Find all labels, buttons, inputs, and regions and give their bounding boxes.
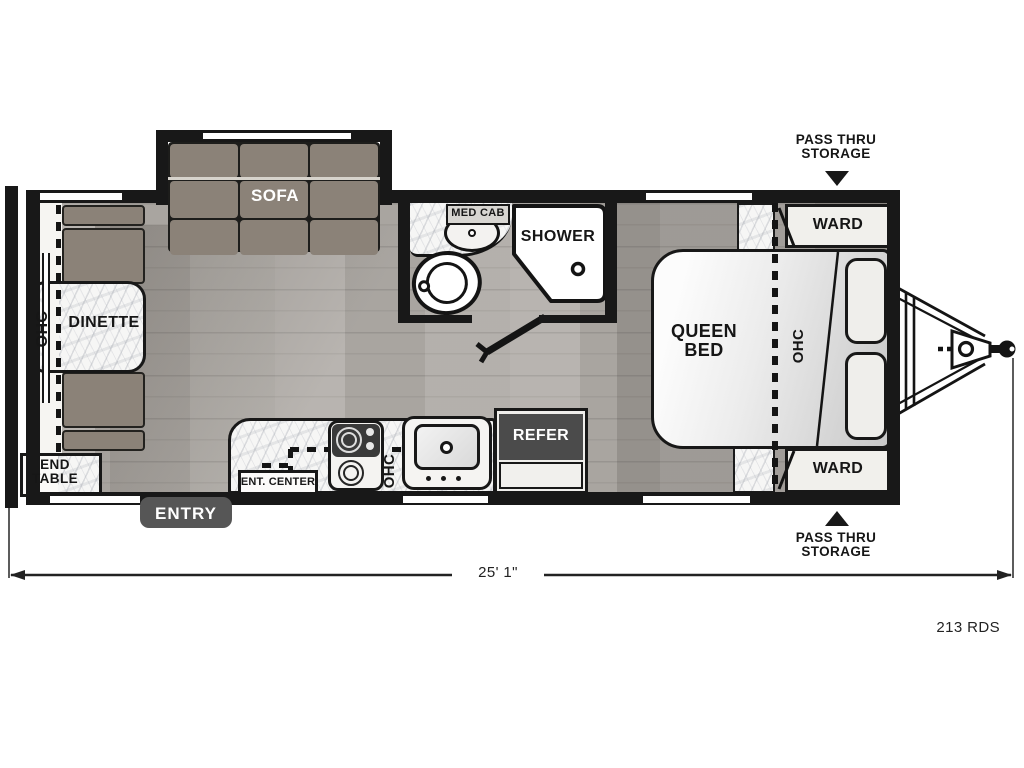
pass-thru-bottom-arrow-icon [825,511,849,526]
refer-label: REFER [499,428,583,445]
bed-diagonal [817,252,838,446]
linework-overlay [0,0,1024,768]
window [50,494,140,505]
window [203,131,351,141]
bath-wall-right [605,203,617,323]
kitchen-ohc-label: OHC [382,443,398,499]
shower-label: SHOWER [514,229,602,246]
rear-bumper [5,186,18,508]
window [40,191,122,202]
med-cab-label: MED CAB [446,208,510,220]
wall-top-right [390,190,900,203]
bath-door [487,317,545,352]
sofa-label: SOFA [225,187,325,205]
bath-door-tick [477,344,487,352]
pass-thru-top-arrow-icon [825,171,849,186]
entry-label: ENTRY [140,505,232,523]
dinette-label: DINETTE [62,315,146,332]
pass-thru-bottom-label: PASS THRU STORAGE [785,531,887,560]
window [643,494,750,505]
wall-front [887,190,900,505]
hitch-bar [898,359,980,404]
ward-bottom-label: WARD [785,461,891,478]
bath-wall-bottom-right [539,315,617,323]
window [646,191,752,202]
hitch-bar [898,364,985,414]
hitch-ball-pin [1010,347,1015,352]
dimension-arrow-right [997,570,1012,580]
coupler-ring [960,343,973,356]
window [403,494,488,505]
end-table-label: END TABLE [24,458,86,487]
dinette-ohc-label: OHC [35,299,53,359]
floorplan-213rds: OHC DINETTE END TABLE SOFA ENT. CENTER O… [0,0,1024,768]
ent-center-label: ENT. CENTER [238,477,318,489]
shower-drain [573,264,584,275]
slide-wall-right [380,130,392,205]
bath-wall-left [398,203,410,323]
bath-wall-bottom-left [398,315,472,323]
shower-stall [514,206,605,301]
dimension-arrow-left [10,570,25,580]
queen-bed-label: QUEEN BED [658,322,750,360]
pass-thru-top-label: PASS THRU STORAGE [785,133,887,162]
bath-door-tick [481,352,487,362]
slide-wall-left [156,130,168,205]
model-code: 213 RDS [900,620,1000,636]
ward-top-label: WARD [785,217,891,234]
hitch-bar [898,288,985,336]
dimension-label: 25' 1" [452,565,544,581]
bedroom-ohc-label: OHC [791,318,809,374]
